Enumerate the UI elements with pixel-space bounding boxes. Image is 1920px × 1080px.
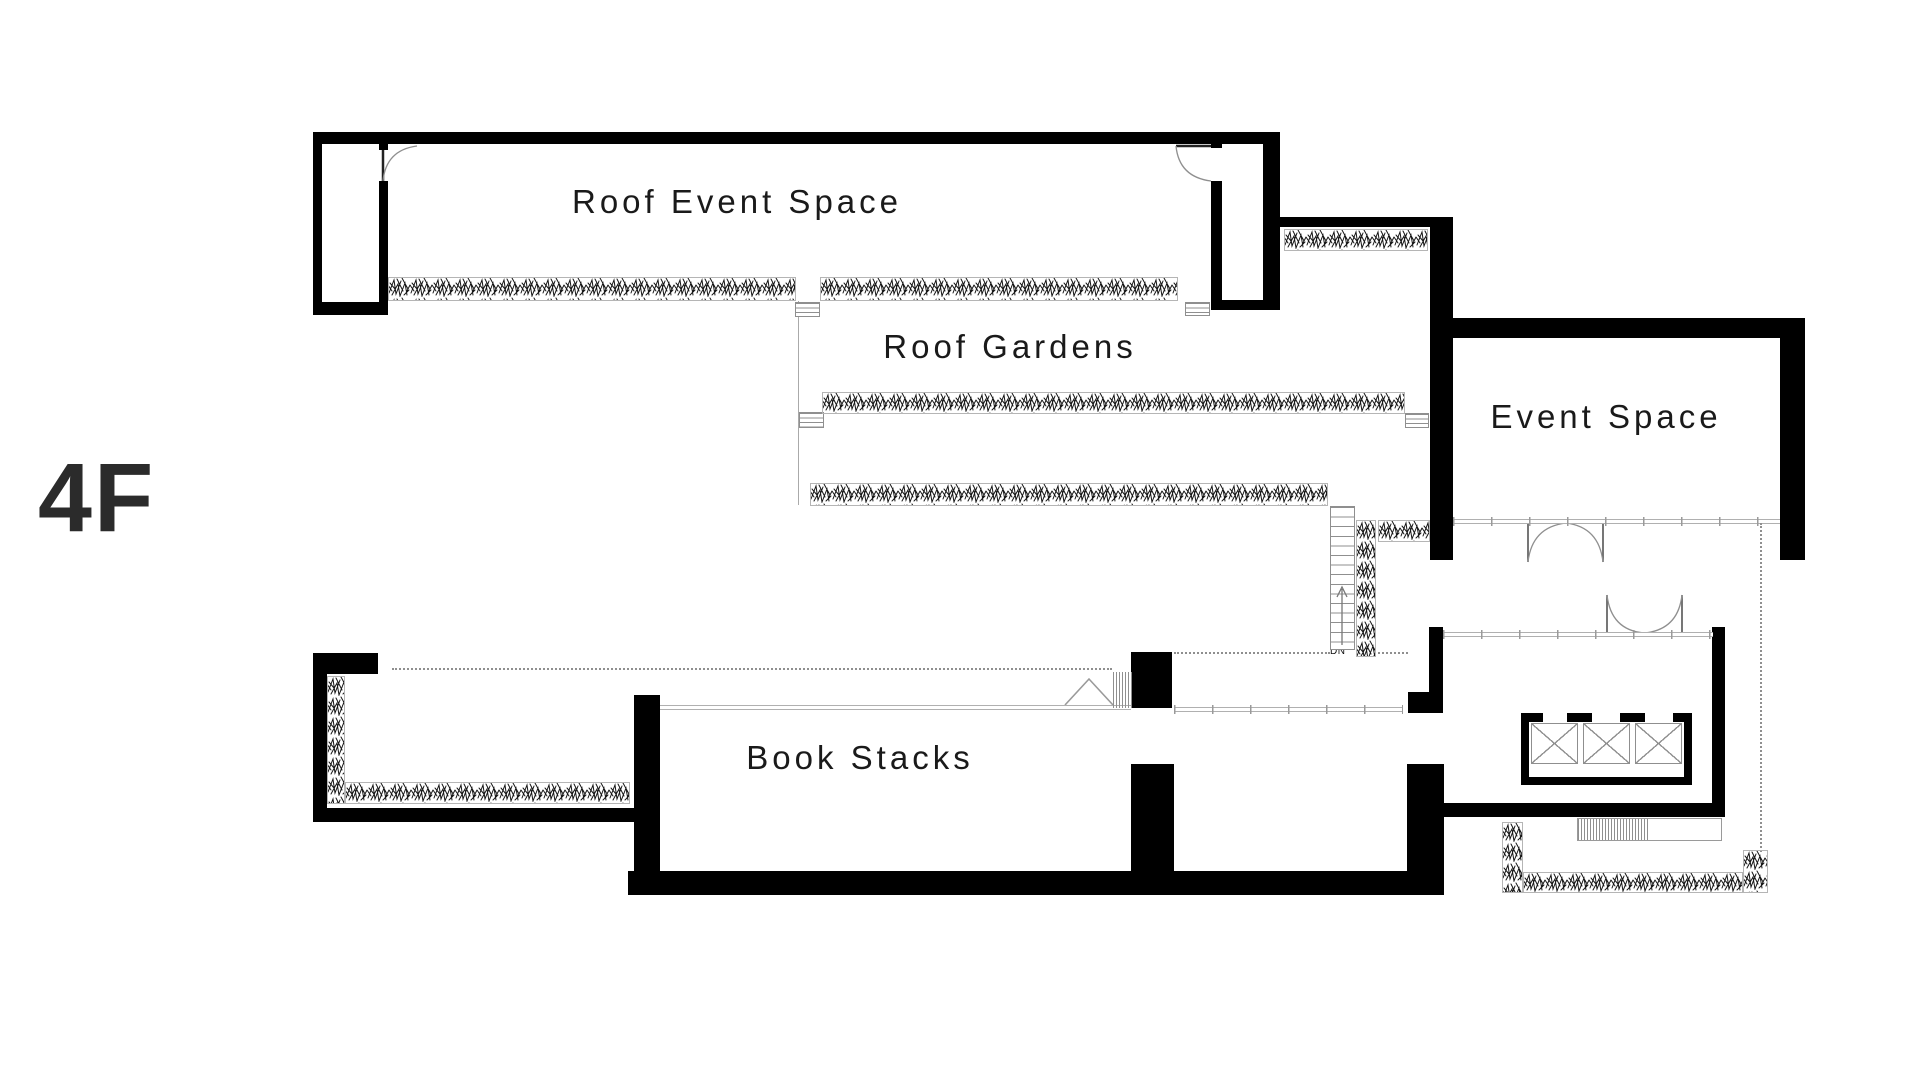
room-label-roof-event-space: Roof Event Space <box>572 183 902 221</box>
wall-segment <box>628 871 1444 895</box>
wall-segment <box>313 808 636 822</box>
wall-segment <box>379 181 388 302</box>
room-label-roof-gardens: Roof Gardens <box>883 328 1136 366</box>
steps-icon <box>799 412 824 428</box>
wall-segment <box>1712 627 1725 817</box>
elevator-jamb-icon <box>1567 713 1592 722</box>
double-door-leaf-icon <box>1607 595 1682 633</box>
stairs-icon <box>1330 506 1355 650</box>
elevator-jamb-icon <box>1620 713 1645 722</box>
room-label-event-space: Event Space <box>1490 398 1721 436</box>
wall-segment <box>1275 217 1444 227</box>
elevator-cell-icon <box>1531 723 1578 764</box>
room-label-book-stacks: Book Stacks <box>746 739 973 777</box>
hedge-planter-icon <box>822 392 1405 414</box>
wall-segment <box>313 132 1280 144</box>
hedge-planter-icon <box>1502 822 1523 893</box>
floor-label: 4F <box>38 442 155 554</box>
double-door-leaf-icon <box>1528 523 1603 562</box>
hedge-planter-icon <box>820 277 1178 301</box>
wall-segment <box>1131 652 1172 708</box>
terrace-edge-line <box>798 301 799 505</box>
dotted-boundary-line <box>392 668 1112 670</box>
hedge-planter-icon <box>1356 520 1376 657</box>
hedge-planter-icon <box>1284 229 1428 251</box>
wall-segment <box>1441 318 1805 338</box>
steps-icon <box>1405 413 1429 428</box>
wall-segment <box>1211 142 1222 148</box>
wall-segment <box>1440 803 1725 817</box>
floor-plan-canvas: 4F Roof Event Space Roof Gardens Event S… <box>0 0 1920 1080</box>
wall-segment <box>1430 217 1453 560</box>
hedge-planter-icon <box>1378 520 1430 542</box>
thin-wall <box>660 705 1131 710</box>
door-arc-icon <box>383 146 417 181</box>
elevator-cell-icon <box>1635 723 1682 764</box>
door-arc-icon <box>1176 146 1211 181</box>
double-door-arc-icon <box>1528 523 1603 562</box>
wall-segment <box>313 132 322 315</box>
wall-segment <box>1780 318 1805 560</box>
wall-tick-marks <box>1174 705 1403 714</box>
elevator-jamb-icon <box>1673 713 1692 722</box>
wall-segment <box>379 143 388 150</box>
hatch-strip-icon <box>1113 672 1132 708</box>
hedge-planter-icon <box>1743 850 1768 893</box>
wall-segment <box>313 653 327 822</box>
wall-tick-marks <box>1443 630 1713 639</box>
wall-segment <box>1429 627 1443 713</box>
wall-segment <box>1407 764 1444 871</box>
steps-icon <box>795 302 820 317</box>
wall-segment <box>1211 181 1222 300</box>
wall-tick-marks <box>1453 517 1780 526</box>
wall-segment <box>313 302 388 315</box>
hedge-planter-icon <box>345 782 630 804</box>
dotted-boundary-line <box>1378 652 1408 654</box>
hedge-planter-icon <box>327 676 345 804</box>
wall-segment <box>1211 300 1280 310</box>
ramp-outline <box>1577 818 1722 841</box>
elevator-cell-icon <box>1583 723 1630 764</box>
hedge-planter-icon <box>810 483 1328 506</box>
double-door-arc-icon <box>1607 595 1682 633</box>
wall-segment <box>1408 692 1429 713</box>
hedge-planter-icon <box>1523 872 1743 893</box>
triangle-skylight-icon <box>1065 679 1113 705</box>
elevator-jamb-icon <box>1521 713 1543 722</box>
wall-segment <box>634 695 660 893</box>
steps-icon <box>1185 302 1210 316</box>
dotted-boundary-line <box>1174 652 1330 654</box>
dotted-boundary-line <box>1760 523 1762 852</box>
wall-segment <box>1131 764 1174 871</box>
hedge-planter-icon <box>388 277 796 301</box>
